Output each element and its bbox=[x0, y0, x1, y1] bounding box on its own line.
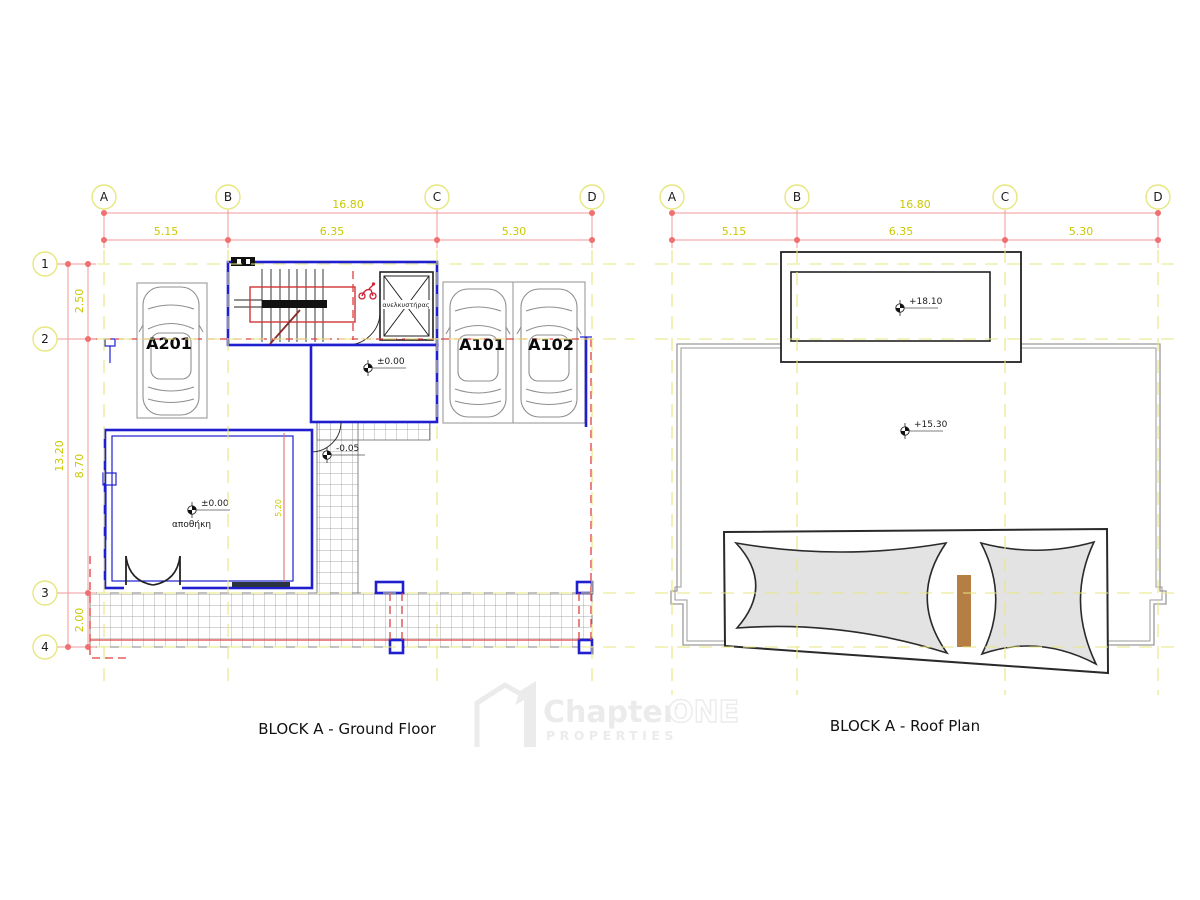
gf-dim-ab: 5.15 bbox=[154, 225, 179, 238]
gf-step-center bbox=[376, 582, 403, 593]
gf-threshold bbox=[232, 582, 290, 587]
drawing-sheet: Chapter ONE PROPERTIES bbox=[0, 0, 1200, 900]
roof-dimensions: 16.80 5.15 6.35 5.30 bbox=[669, 198, 1161, 248]
gf-entry-level: ±0.00 bbox=[377, 357, 405, 367]
ground-floor-plan: ανελκυστήρας ±0.00 5.20 ±0.00 αποθήκη bbox=[90, 257, 592, 658]
plan-canvas: Chapter ONE PROPERTIES bbox=[0, 0, 1200, 900]
pergola-beam bbox=[957, 575, 971, 647]
stair-landing-bar bbox=[262, 300, 327, 308]
shade-sail-right bbox=[981, 542, 1096, 664]
grid-col-bubble: D bbox=[1153, 190, 1162, 204]
grid-col-bubble: B bbox=[224, 190, 232, 204]
grid-row-bubble: 3 bbox=[41, 586, 49, 600]
gf-dim-12: 2.50 bbox=[73, 289, 86, 314]
grid-col-bubble: C bbox=[433, 190, 441, 204]
gf-dim-cd: 5.30 bbox=[502, 225, 527, 238]
gf-dim-34: 2.00 bbox=[73, 608, 86, 633]
grid-col-bubble: A bbox=[668, 190, 677, 204]
unit-label-a201: A201 bbox=[146, 334, 192, 353]
roof-plan: +18.10 +15.30 bbox=[671, 252, 1166, 673]
watermark-logo: Chapter ONE PROPERTIES bbox=[477, 681, 739, 747]
gf-dim-total-w: 16.80 bbox=[332, 198, 364, 211]
roof-level: +15.30 bbox=[914, 420, 948, 430]
stair-top-hatch-gap bbox=[246, 259, 250, 264]
grid-row-bubble: 2 bbox=[41, 332, 49, 346]
grid-col-bubble: B bbox=[793, 190, 801, 204]
unit-label-a101: A101 bbox=[459, 335, 505, 354]
roof-bulkhead-level: +18.10 bbox=[909, 297, 943, 307]
roof-caption: BLOCK A - Roof Plan bbox=[830, 717, 980, 735]
elevator-label: ανελκυστήρας bbox=[382, 301, 429, 309]
gf-caption: BLOCK A - Ground Floor bbox=[258, 720, 436, 738]
stair-top-hatch bbox=[231, 257, 255, 266]
gf-step-right bbox=[577, 582, 592, 593]
watermark-sub-text: PROPERTIES bbox=[546, 728, 678, 743]
watermark-brand-text: Chapter bbox=[543, 695, 678, 730]
gf-outside-level: -0.05 bbox=[336, 444, 359, 454]
roof-bulkhead: +18.10 bbox=[781, 252, 1021, 362]
roof-pergola bbox=[724, 529, 1108, 673]
grid-col-bubble: C bbox=[1001, 190, 1009, 204]
gf-storage-room-label: αποθήκη bbox=[172, 520, 211, 530]
gf-storage-level: ±0.00 bbox=[201, 499, 229, 509]
gf-storage: 5.20 ±0.00 αποθήκη bbox=[105, 430, 312, 592]
gf-dim-total-h: 13.20 bbox=[53, 440, 66, 472]
grid-row-bubble: 1 bbox=[41, 257, 49, 271]
roof-dim-ab: 5.15 bbox=[722, 225, 747, 238]
stair-top-hatch-gap bbox=[237, 259, 241, 264]
grid-row-bubble: 4 bbox=[41, 640, 49, 654]
gf-stair-block: ανελκυστήρας bbox=[228, 257, 437, 345]
watermark-brand2-text: ONE bbox=[668, 695, 739, 730]
gf-storage-dim: 5.20 bbox=[274, 499, 283, 517]
gf-entry-tiles bbox=[317, 422, 430, 440]
grid-col-bubble: A bbox=[100, 190, 109, 204]
gf-paving-bottom bbox=[90, 593, 592, 647]
roof-dim-total-w: 16.80 bbox=[899, 198, 931, 211]
watermark-house-icon bbox=[477, 685, 526, 747]
grid-col-bubble: D bbox=[587, 190, 596, 204]
roof-dim-cd: 5.30 bbox=[1069, 225, 1094, 238]
gf-dim-23: 8.70 bbox=[73, 454, 86, 479]
gf-corridor-walls bbox=[311, 345, 437, 422]
gf-dim-bc: 6.35 bbox=[320, 225, 345, 238]
wall-stub bbox=[105, 339, 115, 346]
roof-dim-bc: 6.35 bbox=[889, 225, 914, 238]
unit-label-a102: A102 bbox=[528, 335, 574, 354]
